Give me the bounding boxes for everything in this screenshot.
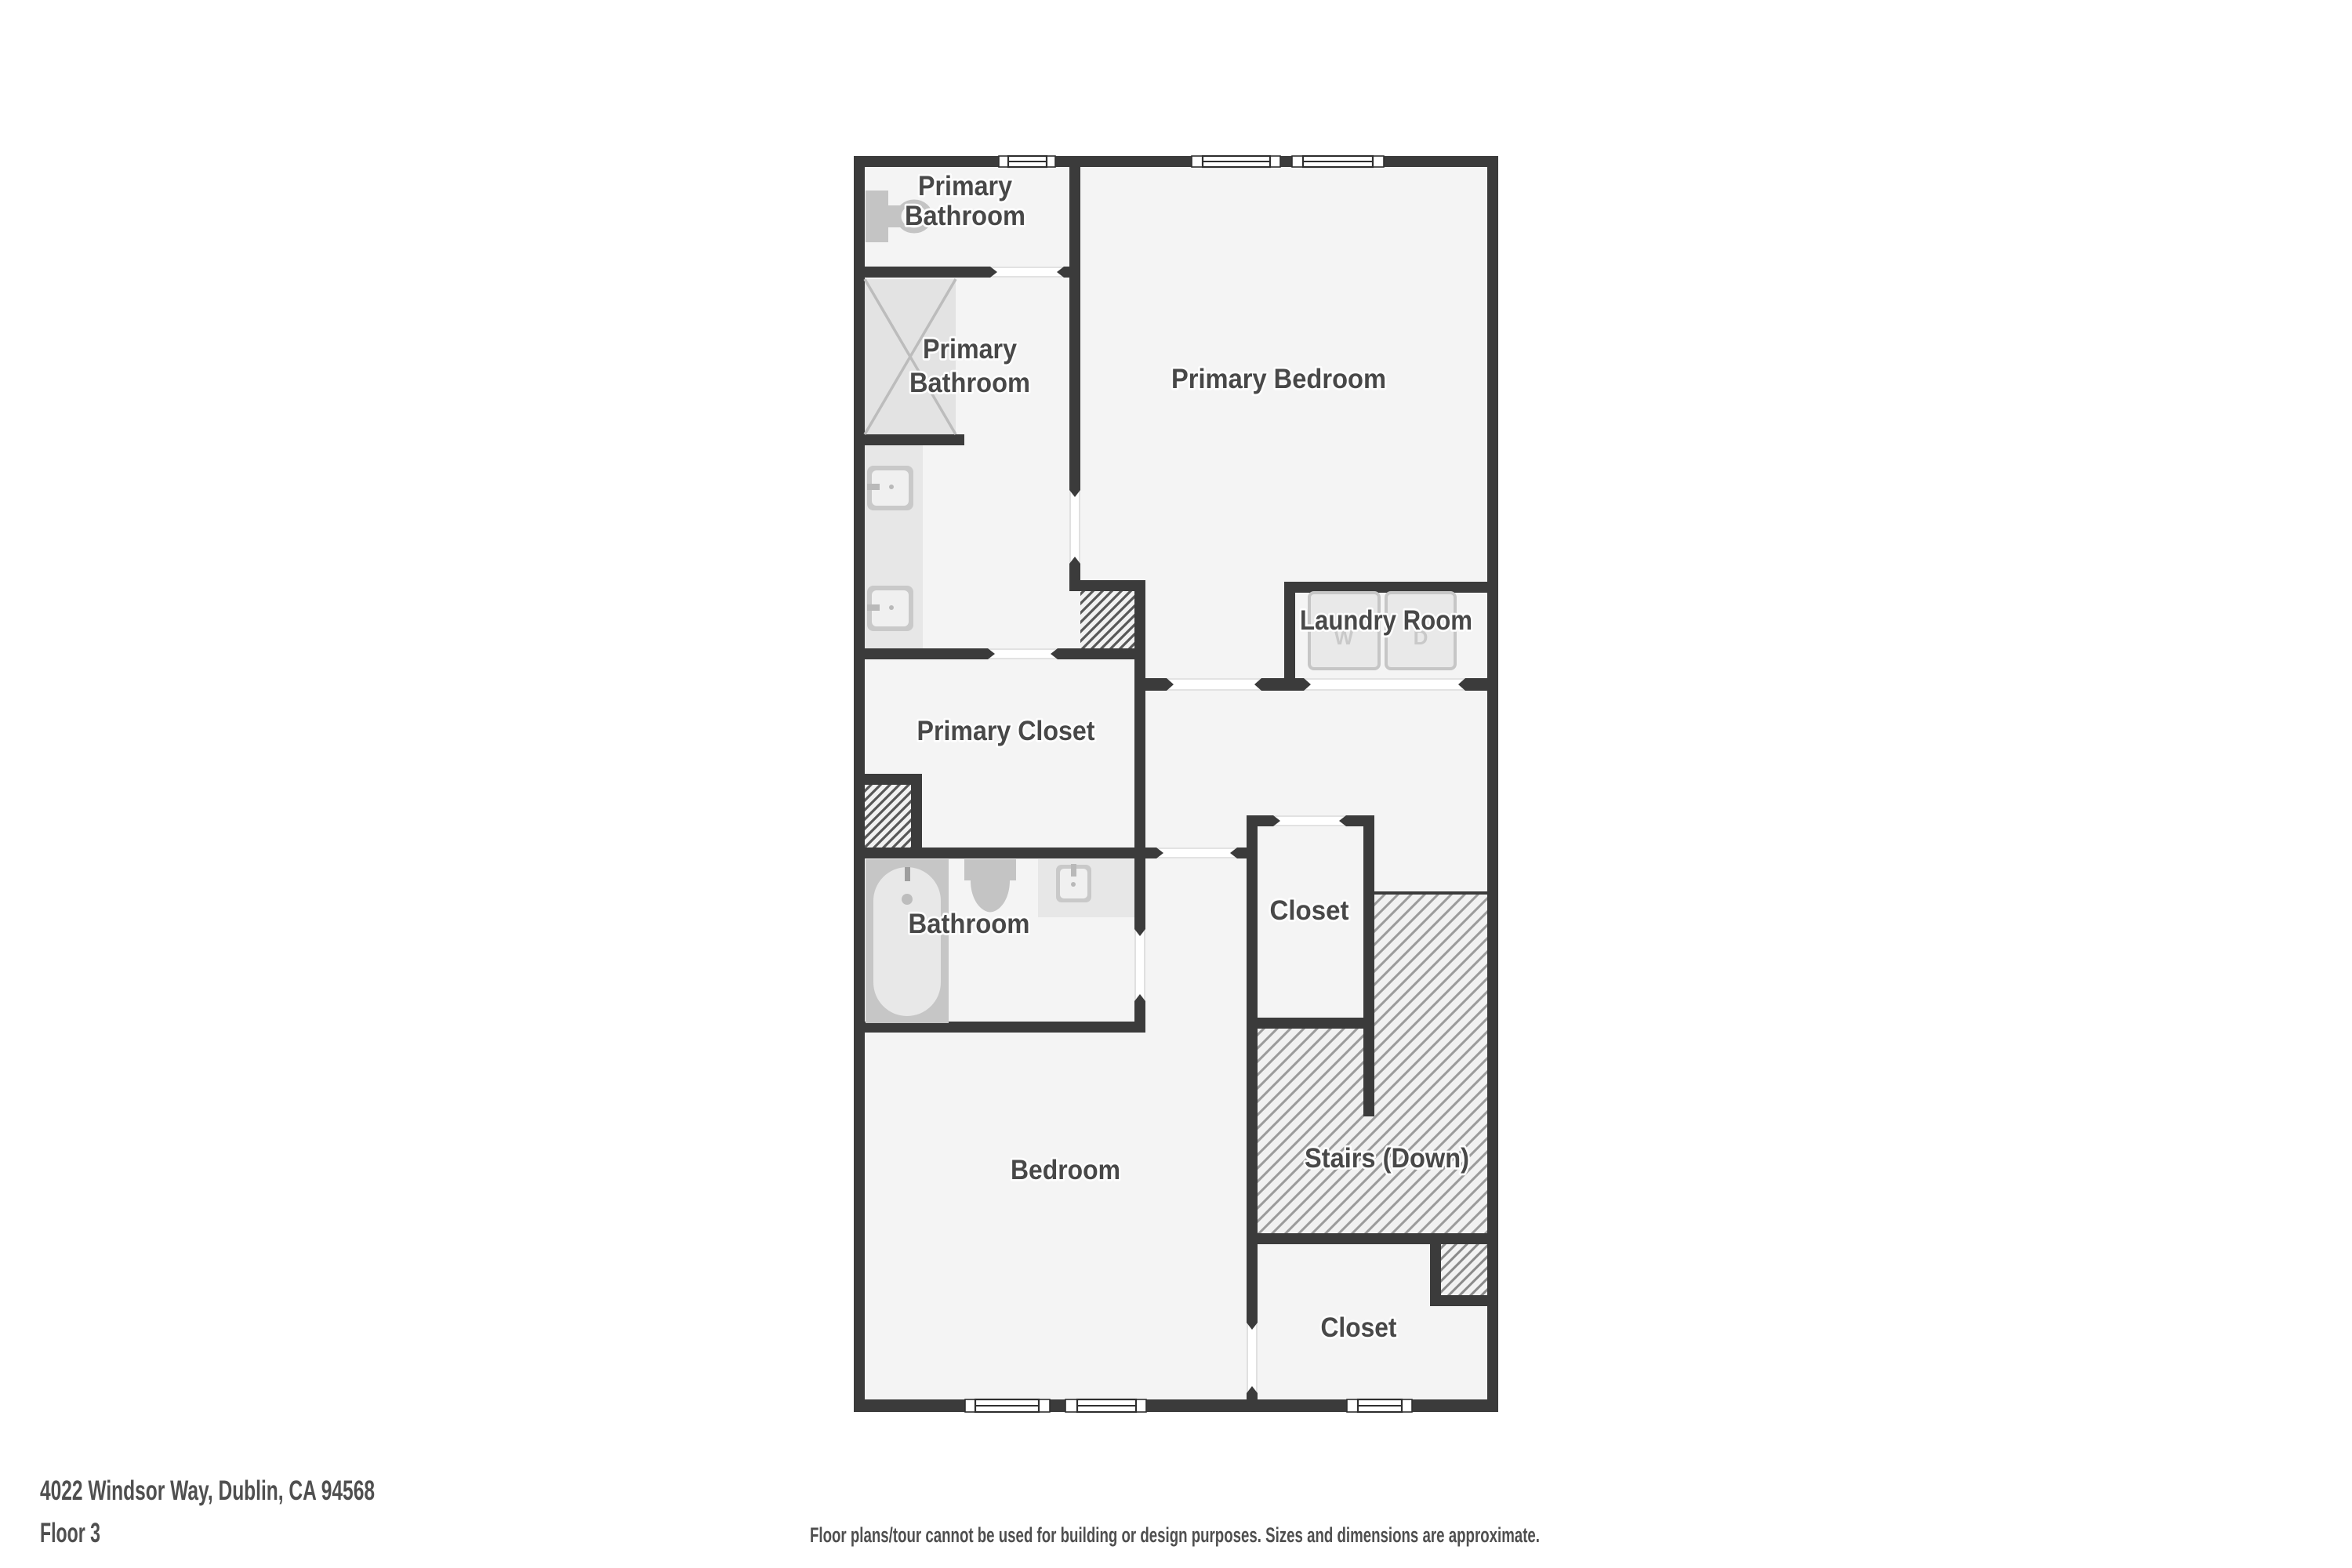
svg-text:Floor 3: Floor 3 — [40, 1518, 100, 1548]
svg-text:Bathroom: Bathroom — [909, 909, 1030, 939]
svg-text:4022 Windsor Way, Dublin, CA 9: 4022 Windsor Way, Dublin, CA 94568 — [40, 1475, 375, 1506]
svg-text:Floor plans/tour cannot be use: Floor plans/tour cannot be used for buil… — [810, 1523, 1540, 1547]
svg-text:Bathroom: Bathroom — [905, 201, 1025, 231]
svg-text:Primary Closet: Primary Closet — [917, 716, 1095, 746]
svg-text:Closet: Closet — [1321, 1312, 1397, 1343]
svg-text:Laundry Room: Laundry Room — [1300, 605, 1472, 636]
svg-text:Primary Bedroom: Primary Bedroom — [1171, 364, 1386, 394]
svg-text:Closet: Closet — [1270, 895, 1349, 926]
svg-text:Primary: Primary — [923, 334, 1017, 365]
svg-text:Primary: Primary — [918, 171, 1012, 201]
svg-text:Bedroom: Bedroom — [1011, 1155, 1120, 1185]
svg-text:Bathroom: Bathroom — [909, 368, 1030, 398]
svg-text:Stairs (Down): Stairs (Down) — [1305, 1143, 1469, 1174]
